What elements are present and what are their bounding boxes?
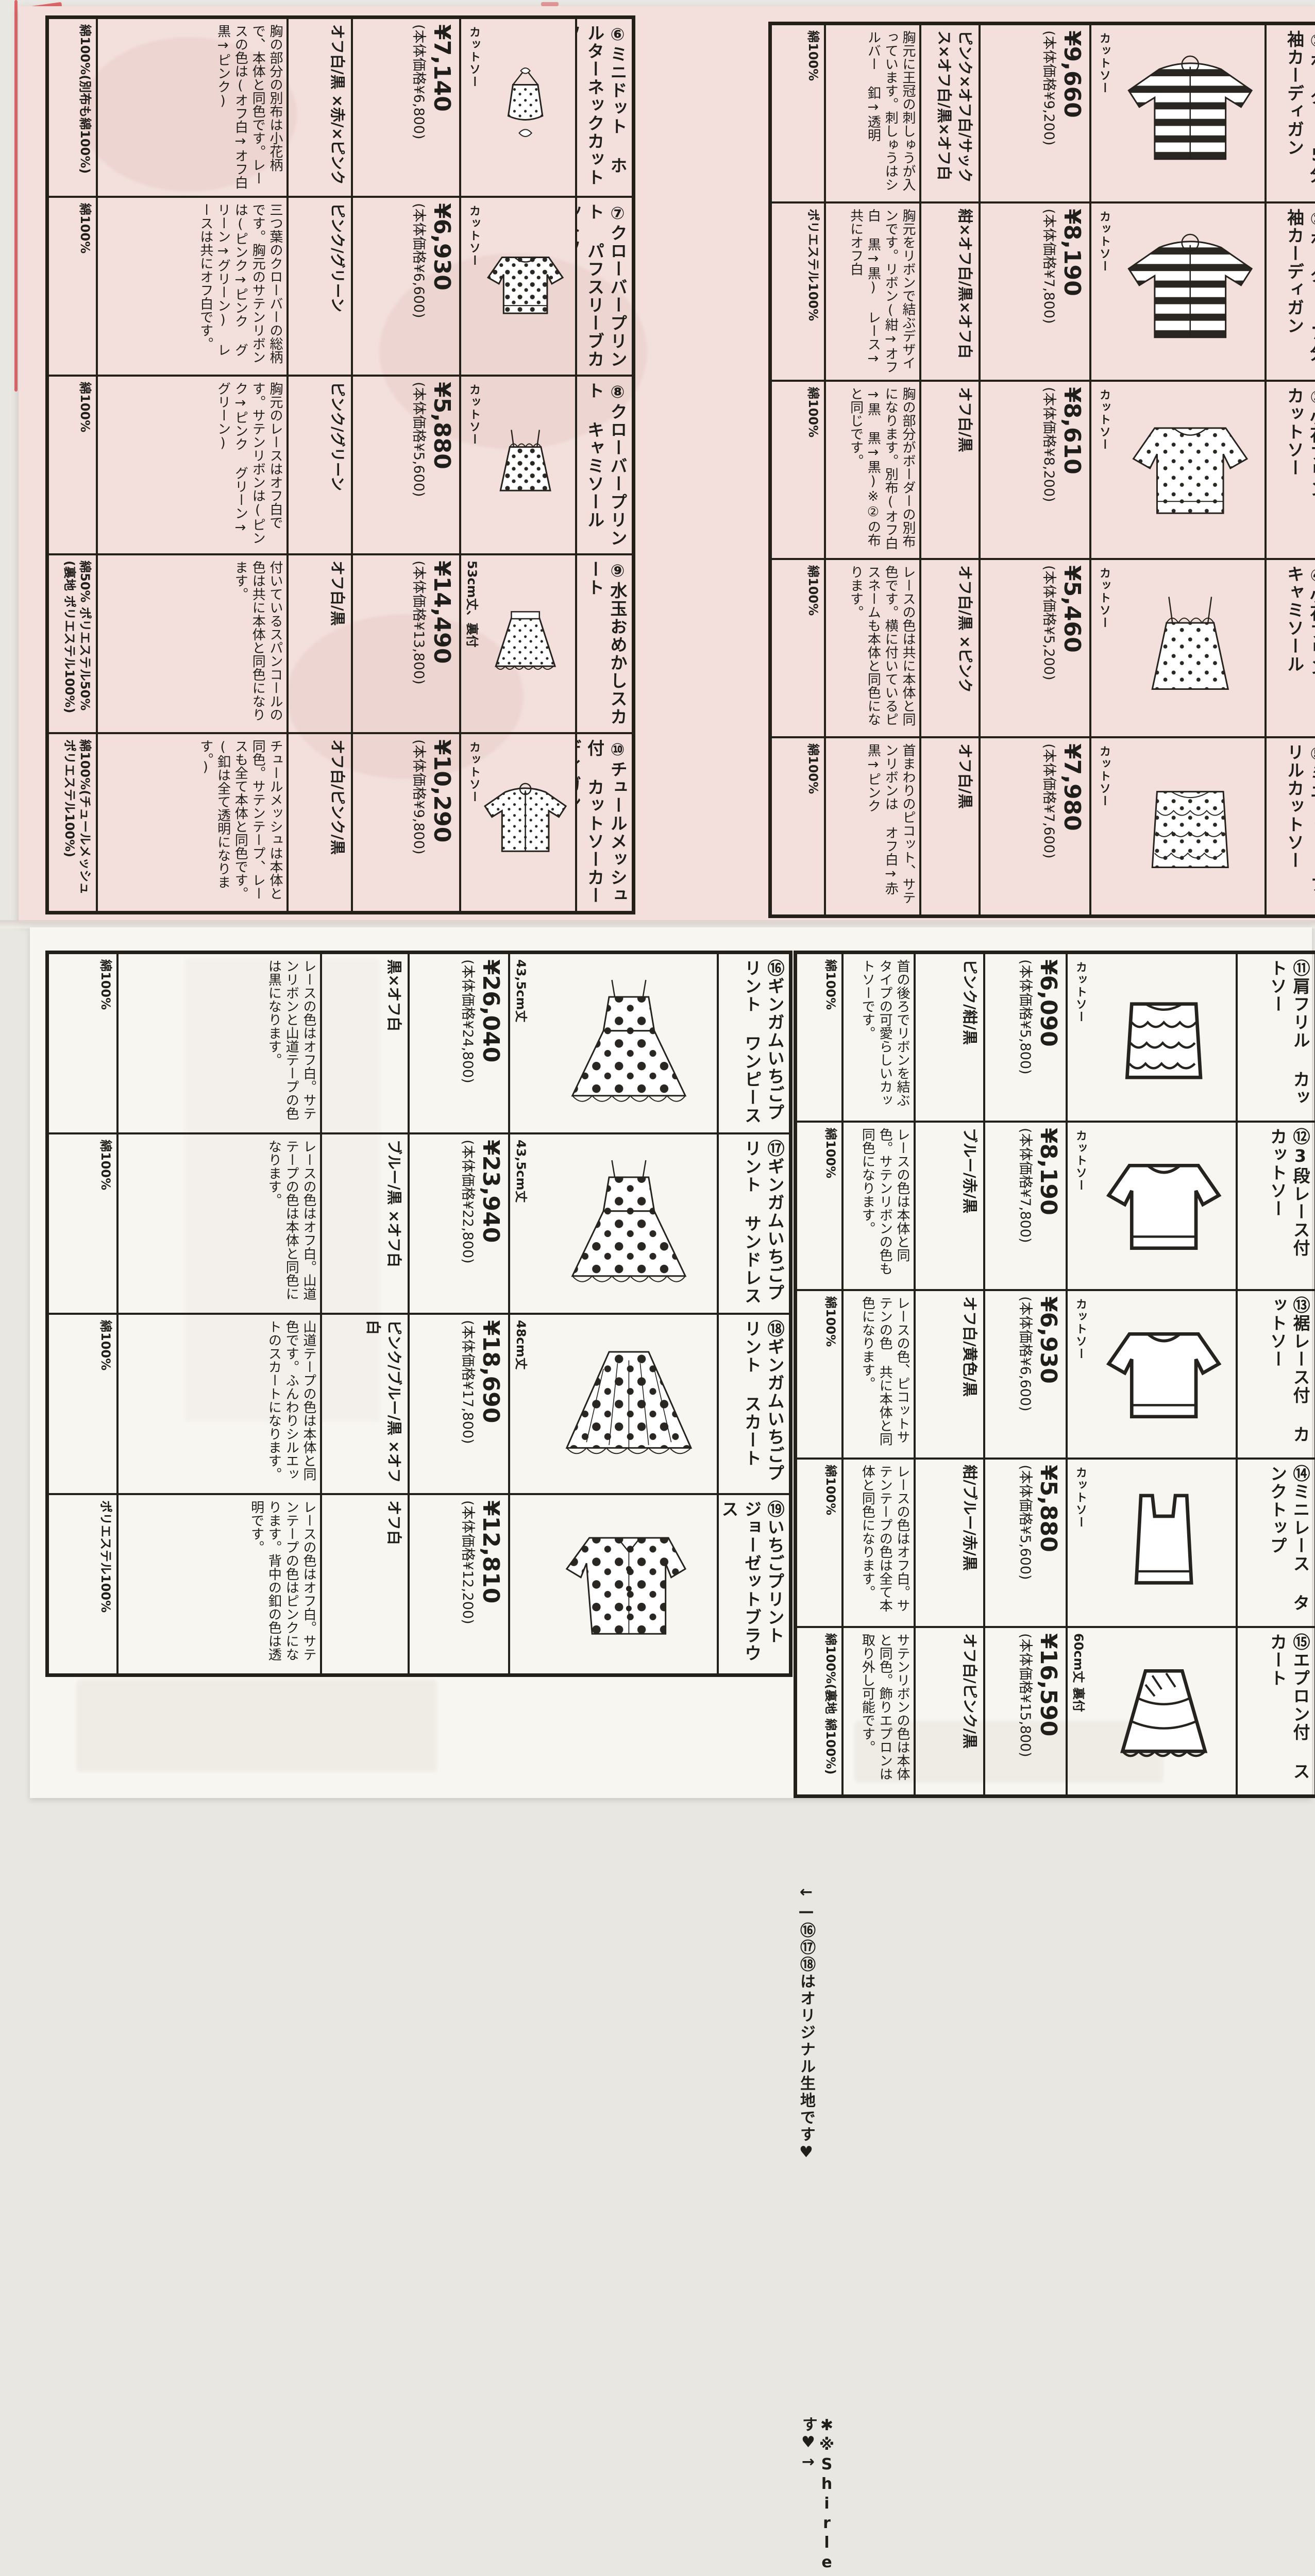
item-type-label: カットソー bbox=[1095, 32, 1112, 94]
item-price: ¥6,930 bbox=[428, 203, 456, 291]
note-cell: 首まわりのピコット、サテンリボンは オフ白→赤 黒→ピンク bbox=[825, 737, 920, 916]
note-cell: 山道テープの色は本体と同色です。ふんわりシルエットのスカートになります。 bbox=[117, 1314, 321, 1494]
item-base-price: (本体価格¥6,800) bbox=[410, 24, 428, 140]
note-cell: レースの色はオフ白。山道テープの色は本体と同色になります。 bbox=[117, 1133, 321, 1314]
item-base-price: (本体価格¥6,600) bbox=[410, 203, 428, 318]
illustration-cell: カットソー bbox=[1090, 559, 1266, 737]
item-price: ¥8,190 bbox=[1034, 1128, 1063, 1215]
item-price: ¥26,040 bbox=[477, 959, 505, 1062]
garment-illustration bbox=[479, 558, 572, 721]
item-price: ¥6,090 bbox=[1034, 959, 1063, 1047]
scan-smudge bbox=[541, 2, 559, 6]
scanned-catalog-page: 綿100%(別布も綿100%)胸の部分の別布は小花柄で、本体と同色です。レースの… bbox=[0, 0, 1315, 1807]
fabric-cell: ポリエステル100% bbox=[48, 1494, 117, 1674]
colors-cell: ピンク/ブルー/黒 ×オフ白 bbox=[321, 1314, 409, 1494]
fabric-cell: 綿50% ポリエステル50%(裏地 ポリエステル100%) bbox=[48, 554, 97, 733]
name-cell: ③小花プリント カットソー bbox=[1266, 381, 1315, 559]
fabric-cell: 綿100%(別布も綿100%) bbox=[48, 18, 97, 197]
item-base-price: (本体価格¥9,800) bbox=[410, 739, 428, 855]
item-base-price: (本体価格¥12,200) bbox=[459, 1500, 477, 1624]
original-fabric-note: ←—⑯⑰⑱はオリジナル生地です♥ bbox=[797, 1883, 815, 2306]
colors-cell: オフ白/ピンク/黒 bbox=[288, 733, 352, 912]
colors-cell: ピンク/グリーン bbox=[288, 197, 352, 376]
colors-cell: オフ白/黒 ×赤/×ピンク bbox=[288, 18, 352, 197]
garment-illustration bbox=[479, 22, 572, 185]
name-cell: ⑥ミニドット ホルターネックカットソー bbox=[576, 18, 633, 197]
item-base-price: (本体価格¥15,800) bbox=[1016, 1633, 1034, 1757]
illustration-cell: 43,5cm丈 bbox=[509, 1133, 718, 1314]
price-cell: ¥16,590(本体価格¥15,800) bbox=[984, 1627, 1067, 1795]
price-cell: ¥7,980(本体価格¥7,600) bbox=[980, 737, 1090, 916]
catalog-table-items-16-19: 綿100%レースの色はオフ白。サテンリボンと山道テープの色は黒になります。黒×オ… bbox=[45, 951, 793, 1677]
illustration-cell: カットソー bbox=[1067, 1122, 1237, 1290]
name-cell: ⑭ミニレース タンクトップ bbox=[1237, 1459, 1315, 1627]
item-size-label: 60cm丈 裏付 bbox=[1071, 1633, 1089, 1712]
scan-edge-mark bbox=[14, 0, 18, 392]
note-cell: レースの色は本体と同色。サテンリボンの色も同色になります。 bbox=[842, 1122, 915, 1290]
garment-illustration bbox=[1095, 1294, 1233, 1447]
price-cell: ¥8,190(本体価格¥7,800) bbox=[980, 202, 1090, 381]
note-cell: 胸の部分がボーダーの別布になります。別布(オフ白→黒 黒→黒)※②の布と同じです… bbox=[825, 381, 920, 559]
item-type-label: カットソー bbox=[1095, 567, 1112, 629]
name-cell: ⑪肩フリル カットソー bbox=[1237, 953, 1315, 1122]
item-price: ¥7,980 bbox=[1058, 743, 1086, 831]
item-price: ¥14,490 bbox=[428, 561, 456, 664]
garment-illustration bbox=[1095, 1126, 1233, 1279]
name-cell: ⑩チュールメッシュ付 カットソーカーディガン bbox=[576, 733, 633, 912]
colors-cell: オフ白/黒 bbox=[920, 381, 980, 559]
garment-illustration bbox=[1119, 385, 1261, 547]
catalog-table-items-1-5: 綿100%胸元に王冠の刺しゅうが入っています。刺しゅうはシルバー 釦→透明ピンク… bbox=[768, 22, 1315, 918]
fabric-cell: 綿100% bbox=[48, 1314, 117, 1494]
name-cell: ⑬裾レース付 カットソー bbox=[1237, 1290, 1315, 1459]
bottom-page: 綿100%レースの色はオフ白。サテンリボンと山道テープの色は黒になります。黒×オ… bbox=[30, 927, 1312, 1798]
item-base-price: (本体価格¥7,800) bbox=[1016, 1128, 1034, 1243]
price-cell: ¥6,930(本体価格¥6,600) bbox=[352, 197, 460, 376]
name-cell: ①ボーダー 5分袖カーディガン bbox=[1266, 24, 1315, 202]
colors-cell: ピンク/紺/黒 bbox=[915, 953, 984, 1122]
price-cell: ¥6,090(本体価格¥5,800) bbox=[984, 953, 1067, 1122]
item-price: ¥8,610 bbox=[1058, 387, 1086, 474]
price-cell: ¥23,940(本体価格¥22,800) bbox=[409, 1133, 509, 1314]
name-cell: ⑦クローバープリント パフスリーブカットソー bbox=[576, 197, 633, 376]
note-cell: レースの色は共に本体と同色です。横に付いているピスネームも本体と同色になります。 bbox=[825, 559, 920, 737]
item-type-label: カットソー bbox=[465, 205, 482, 267]
illustration-cell: カットソー bbox=[1090, 202, 1266, 381]
note-cell: 三つ葉のクローバーの総柄です。胸元のサテンリボンは(ピンク→ピンク グリーン→グ… bbox=[97, 197, 288, 376]
item-base-price: (本体価格¥9,200) bbox=[1040, 30, 1058, 146]
item-price: ¥5,880 bbox=[428, 382, 456, 469]
item-type-label: カットソー bbox=[1072, 1467, 1088, 1529]
note-cell: 胸元をリボンで結ぶデザインです。リボン(紺→オフ白 黒→黒) レース→共にオフ白 bbox=[825, 202, 920, 381]
note-cell: レースの色はオフ白。サテンテープの色はピンクになります。背中の釦の色は透明です。 bbox=[117, 1494, 321, 1674]
illustration-cell: カットソー bbox=[1090, 24, 1266, 202]
price-cell: ¥26,040(本体価格¥24,800) bbox=[409, 953, 509, 1133]
garment-illustration bbox=[1095, 1631, 1233, 1784]
colors-cell: 黒×オフ白 bbox=[321, 953, 409, 1133]
garment-illustration bbox=[544, 1498, 714, 1662]
illustration-cell: 48cm丈 bbox=[509, 1314, 718, 1494]
note-cell: サテンリボンの色は本体と同色。飾りエプロンは取り外し可能です。 bbox=[842, 1627, 915, 1795]
price-cell: ¥12,810(本体価格¥12,200) bbox=[409, 1494, 509, 1674]
note-cell: チュールメッシュは本体と同色。サテンテープ、レースも全て本体と同色です。(釦は全… bbox=[97, 733, 288, 912]
illustration-cell: カットソー bbox=[1067, 1290, 1237, 1459]
name-cell: ②ボーダー 7分袖カーディガン bbox=[1266, 202, 1315, 381]
item-type-label: カットソー bbox=[1072, 961, 1088, 1023]
note-cell: 胸の部分の別布は小花柄で、本体と同色です。レースの色は(オフ白→オフ白 黒→ピン… bbox=[97, 18, 288, 197]
item-type-label: カットソー bbox=[1095, 389, 1112, 451]
item-price: ¥5,880 bbox=[1034, 1465, 1063, 1552]
name-cell: ⑮エプロン付 スカート bbox=[1237, 1627, 1315, 1795]
name-cell: ⑤ミニドット フリルカットソー bbox=[1266, 737, 1315, 916]
item-base-price: (本体価格¥6,600) bbox=[1016, 1296, 1034, 1412]
item-price: ¥5,460 bbox=[1058, 565, 1086, 653]
item-price: ¥10,290 bbox=[428, 739, 456, 842]
illustration-cell: カットソー bbox=[1090, 737, 1266, 916]
garment-illustration bbox=[1095, 957, 1233, 1110]
item-price: ¥6,930 bbox=[1034, 1296, 1063, 1384]
item-base-price: (本体価格¥5,200) bbox=[1040, 565, 1058, 681]
price-cell: ¥14,490(本体価格¥13,800) bbox=[352, 554, 460, 733]
item-base-price: (本体価格¥13,800) bbox=[410, 561, 428, 685]
price-cell: ¥8,190(本体価格¥7,800) bbox=[984, 1122, 1067, 1290]
price-cell: ¥8,610(本体価格¥8,200) bbox=[980, 381, 1090, 559]
name-cell: ⑰ギンガムいちごプリント サンドレス bbox=[718, 1133, 790, 1314]
colors-cell: ピンク×オフ白/サックス×オフ白/黒×オフ白 bbox=[920, 24, 980, 202]
colors-cell: オフ白/黒 bbox=[288, 554, 352, 733]
note-cell: 胸元に王冠の刺しゅうが入っています。刺しゅうはシルバー 釦→透明 bbox=[825, 24, 920, 202]
fabric-cell: 綿100% bbox=[796, 953, 842, 1122]
name-cell: ⑨水玉おめかしスカート bbox=[576, 554, 633, 733]
price-cell: ¥6,930(本体価格¥6,600) bbox=[984, 1290, 1067, 1459]
item-base-price: (本体価格¥24,800) bbox=[459, 959, 477, 1083]
illustration-cell: 60cm丈 裏付 bbox=[1067, 1627, 1237, 1795]
item-type-label: カットソー bbox=[465, 384, 482, 446]
garment-illustration bbox=[479, 737, 572, 900]
item-base-price: (本体価格¥7,600) bbox=[1040, 743, 1058, 859]
colors-cell: ブルー/黒 ×オフ白 bbox=[321, 1133, 409, 1314]
item-size-label: 43,5cm丈 bbox=[513, 959, 531, 1022]
colors-cell: オフ白/黒 bbox=[920, 737, 980, 916]
note-cell: レースの色、ピコットサテンの色 共に本体と同色になります。 bbox=[842, 1290, 915, 1459]
garment-illustration bbox=[1119, 563, 1261, 725]
illustration-cell: カットソー bbox=[460, 376, 576, 554]
fabric-cell: 綿100% bbox=[771, 559, 825, 737]
price-cell: ¥10,290(本体価格¥9,800) bbox=[352, 733, 460, 912]
catalog-table-items-6-10: 綿100%(別布も綿100%)胸の部分の別布は小花柄で、本体と同色です。レースの… bbox=[45, 15, 635, 914]
colors-cell: オフ白/黒 ×ピンク bbox=[920, 559, 980, 737]
illustration-cell bbox=[509, 1494, 718, 1674]
item-type-label: カットソー bbox=[1095, 745, 1112, 807]
colors-cell: ブルー/赤/黒 bbox=[915, 1122, 984, 1290]
fabric-cell: 綿100% bbox=[48, 376, 97, 554]
name-cell: ⑯ギンガムいちごプリント ワンピース bbox=[718, 953, 790, 1133]
fabric-cell: 綿100%(裏地 綿100%) bbox=[796, 1627, 842, 1795]
note-cell: 付いているスパンコールの色は共に本体と同色になります。 bbox=[97, 554, 288, 733]
catalog-table-items-11-15: 綿100%首の後ろでリボンを結ぶタイプの可愛らしいカットソーです。ピンク/紺/黒… bbox=[794, 951, 1315, 1798]
garment-illustration bbox=[544, 1318, 714, 1482]
name-cell: ⑫3段レース付 カットソー bbox=[1237, 1122, 1315, 1290]
illustration-cell: カットソー bbox=[460, 197, 576, 376]
illustration-cell: カットソー bbox=[1067, 953, 1237, 1122]
item-price: ¥12,810 bbox=[477, 1500, 505, 1603]
note-cell: 胸元のレースはオフ白です。サテンリボンは(ピンク→ピンク グリーン→グリーン) bbox=[97, 376, 288, 554]
item-size-label: 48cm丈 bbox=[513, 1320, 531, 1370]
item-price: ¥23,940 bbox=[477, 1140, 505, 1243]
name-cell: ④小花プリント キャミソール bbox=[1266, 559, 1315, 737]
fabric-cell: 綿100% bbox=[771, 381, 825, 559]
fabric-cell: 綿100% bbox=[771, 737, 825, 916]
garment-illustration bbox=[544, 1138, 714, 1301]
fabric-cell: 綿100% bbox=[48, 1133, 117, 1314]
item-size-label: 53cm丈、裏付 bbox=[464, 561, 482, 648]
note-cell: 首の後ろでリボンを結ぶタイプの可愛らしいカットソーです。 bbox=[842, 953, 915, 1122]
garment-illustration bbox=[1119, 207, 1261, 369]
item-base-price: (本体価格¥8,200) bbox=[1040, 387, 1058, 502]
fabric-cell: 綿100% bbox=[796, 1290, 842, 1459]
price-cell: ¥5,880(本体価格¥5,600) bbox=[352, 376, 460, 554]
shirley-matching-note: ✱※Shirleyとお揃い生地です♥→ bbox=[799, 2416, 836, 2576]
illustration-cell: カットソー bbox=[1090, 381, 1266, 559]
illustration-cell: 43,5cm丈 bbox=[509, 953, 718, 1133]
item-size-label: 43,5cm丈 bbox=[513, 1140, 531, 1202]
colors-cell: ピンク/グリーン bbox=[288, 376, 352, 554]
item-type-label: カットソー bbox=[1072, 1130, 1088, 1192]
name-cell: ⑧クローバープリント キャミソール bbox=[576, 376, 633, 554]
item-type-label: カットソー bbox=[465, 741, 482, 803]
fabric-cell: 綿100% bbox=[796, 1122, 842, 1290]
colors-cell: 紺/ブルー/赤/黒 bbox=[915, 1459, 984, 1627]
garment-illustration bbox=[479, 201, 572, 364]
fabric-cell: 綿100% bbox=[796, 1459, 842, 1627]
name-cell: ⑲いちごプリント ジョーゼットブラウス bbox=[718, 1494, 790, 1674]
garment-illustration bbox=[544, 957, 714, 1121]
fabric-cell: ポリエステル100% bbox=[771, 202, 825, 381]
garment-illustration bbox=[1119, 28, 1261, 191]
price-cell: ¥9,660(本体価格¥9,200) bbox=[980, 24, 1090, 202]
note-cell: レースの色はオフ白。サテンテープの色は全て本体と同色になります。 bbox=[842, 1459, 915, 1627]
garment-illustration bbox=[479, 380, 572, 543]
illustration-cell: カットソー bbox=[460, 733, 576, 912]
item-base-price: (本体価格¥22,800) bbox=[459, 1140, 477, 1264]
item-base-price: (本体価格¥17,800) bbox=[459, 1320, 477, 1444]
item-base-price: (本体価格¥5,600) bbox=[1016, 1465, 1034, 1580]
top-page: 綿100%(別布も綿100%)胸の部分の別布は小花柄で、本体と同色です。レースの… bbox=[19, 6, 1315, 922]
colors-cell: オフ白 bbox=[321, 1494, 409, 1674]
item-price: ¥16,590 bbox=[1034, 1633, 1063, 1736]
garment-illustration bbox=[1119, 741, 1261, 904]
garment-illustration bbox=[1095, 1463, 1233, 1616]
price-cell: ¥5,460(本体価格¥5,200) bbox=[980, 559, 1090, 737]
item-price: ¥18,690 bbox=[477, 1320, 505, 1423]
item-type-label: カットソー bbox=[465, 26, 482, 88]
fabric-cell: 綿100% bbox=[48, 953, 117, 1133]
fabric-cell: 綿100% bbox=[771, 24, 825, 202]
price-cell: ¥7,140(本体価格¥6,800) bbox=[352, 18, 460, 197]
item-type-label: カットソー bbox=[1095, 211, 1112, 273]
illustration-cell: 53cm丈、裏付 bbox=[460, 554, 576, 733]
note-cell: レースの色はオフ白。サテンリボンと山道テープの色は黒になります。 bbox=[117, 953, 321, 1133]
fabric-cell: 綿100%(チュールメッシュ ポリエステル100%) bbox=[48, 733, 97, 912]
price-cell: ¥18,690(本体価格¥17,800) bbox=[409, 1314, 509, 1494]
price-cell: ¥5,880(本体価格¥5,600) bbox=[984, 1459, 1067, 1627]
colors-cell: オフ白/黄色/黒 bbox=[915, 1290, 984, 1459]
illustration-cell: カットソー bbox=[1067, 1459, 1237, 1627]
colors-cell: オフ白/ピンク/黒 bbox=[915, 1627, 984, 1795]
colors-cell: 紺×オフ白/黒×オフ白 bbox=[920, 202, 980, 381]
illustration-cell: カットソー bbox=[460, 18, 576, 197]
item-type-label: カットソー bbox=[1072, 1298, 1088, 1360]
fabric-cell: 綿100% bbox=[48, 197, 97, 376]
item-price: ¥8,190 bbox=[1058, 209, 1086, 296]
item-price: ¥9,660 bbox=[1058, 30, 1086, 118]
item-price: ¥7,140 bbox=[428, 24, 456, 112]
name-cell: ⑱ギンガムいちごプリント スカート bbox=[718, 1314, 790, 1494]
item-base-price: (本体価格¥5,800) bbox=[1016, 959, 1034, 1075]
item-base-price: (本体価格¥7,800) bbox=[1040, 209, 1058, 324]
item-base-price: (本体価格¥5,600) bbox=[410, 382, 428, 497]
